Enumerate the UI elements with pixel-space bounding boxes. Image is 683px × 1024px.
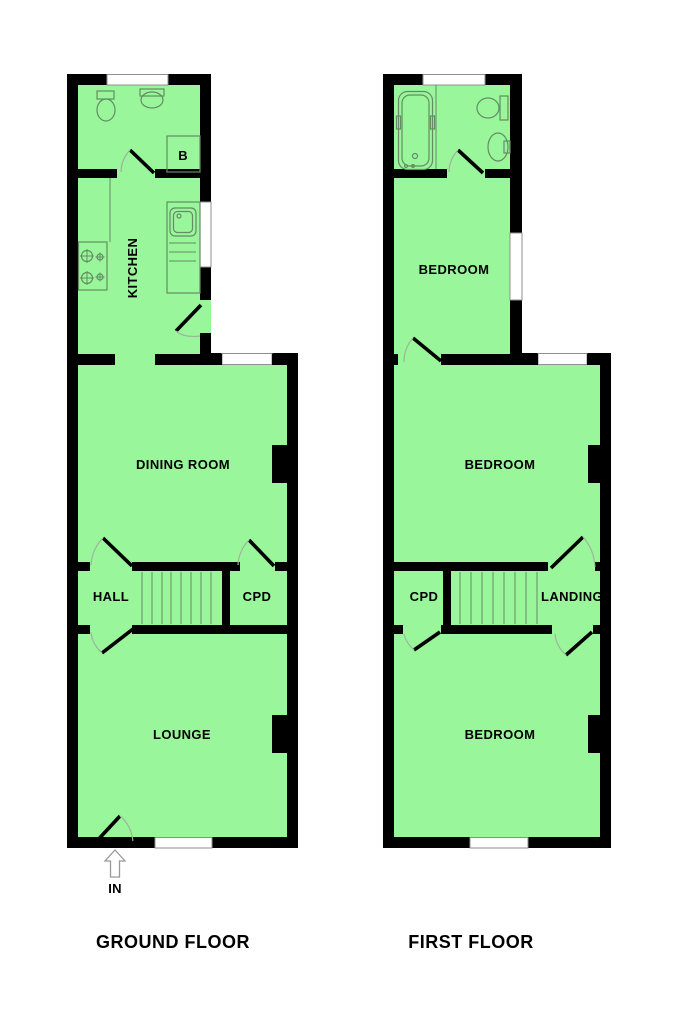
- floorplan-drawing: KITCHEN DINING ROOM HALL CPD LOUNGE B IN…: [0, 0, 683, 1024]
- ground-floor-title: GROUND FLOOR: [96, 932, 250, 952]
- gf-kitchen-backdoor-opening: [200, 300, 211, 333]
- gf-dining-window: [222, 354, 272, 365]
- ff-bedroom-top-window: [510, 233, 522, 300]
- first-floor-title: FIRST FLOOR: [408, 932, 534, 952]
- ff-landing-label: LANDING: [541, 589, 603, 604]
- gf-kitchen-label: KITCHEN: [125, 238, 140, 299]
- gf-bathroom-window: [107, 75, 168, 86]
- ff-bedroom-bottom-window: [470, 838, 528, 849]
- ff-bedroom-middle-window: [538, 354, 587, 365]
- gf-lounge-chimney-breast: [272, 715, 287, 753]
- ff-bedroom-top-label: BEDROOM: [419, 262, 490, 277]
- first-floor-plan: BEDROOM BEDROOM CPD LANDING BEDROOM FIRS…: [383, 74, 611, 952]
- gf-lounge-label: LOUNGE: [153, 727, 211, 742]
- ff-cupboard-label: CPD: [410, 589, 439, 604]
- ground-floor-plan: KITCHEN DINING ROOM HALL CPD LOUNGE B IN…: [67, 74, 298, 952]
- gf-dining-room-label: DINING ROOM: [136, 457, 230, 472]
- floorplan-page: KITCHEN DINING ROOM HALL CPD LOUNGE B IN…: [0, 0, 683, 1024]
- gf-dining-chimney-breast: [272, 445, 287, 483]
- ff-bedroom-middle-chimney-breast: [588, 445, 600, 483]
- ff-bathroom-window: [423, 75, 485, 86]
- gf-kitchen-window: [200, 202, 211, 267]
- gf-boiler-label: B: [178, 148, 188, 163]
- entrance-label: IN: [108, 881, 121, 896]
- entrance-arrow-icon: [105, 850, 125, 877]
- gf-lounge-window: [155, 838, 212, 849]
- gf-hall-label: HALL: [93, 589, 129, 604]
- ff-bedroom-bottom-chimney-breast: [588, 715, 600, 753]
- gf-cupboard-label: CPD: [243, 589, 272, 604]
- ff-bedroom-bottom-label: BEDROOM: [465, 727, 536, 742]
- ff-bedroom-middle-label: BEDROOM: [465, 457, 536, 472]
